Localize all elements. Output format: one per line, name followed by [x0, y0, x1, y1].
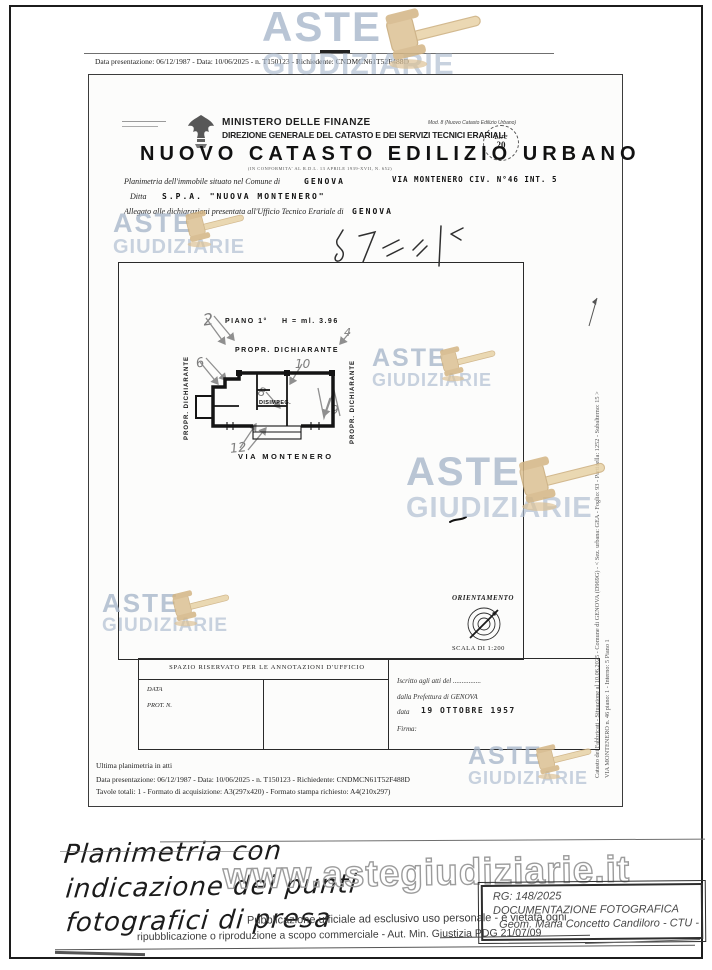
gavel-icon: [506, 456, 616, 512]
watermark-aste-1: ASTE GIUDIZIARIE: [262, 6, 455, 80]
form-line1-value: GENOVA: [304, 177, 345, 186]
compass-icon: [462, 602, 506, 646]
sheet-footer-line1: Data presentazione: 06/12/1987 - Data: 1…: [96, 775, 410, 784]
room-label: DISIMPEG.: [259, 400, 291, 406]
photo-doc-box: RG: 148/2025 DOCUMENTAZIONE FOTOGRAFICA …: [481, 883, 703, 941]
registry-line-1: Iscritto agli atti del ................: [397, 677, 481, 685]
watermark-aste-4: ASTE GIUDIZIARIE: [406, 452, 593, 523]
gavel-icon: [372, 8, 492, 70]
form-line2-value: S.P.A. "NUOVA MONTENERO": [162, 192, 326, 201]
gavel-icon: [528, 744, 598, 780]
gavel-icon: [177, 210, 251, 248]
form-line2-label: Ditta: [130, 192, 146, 201]
office-stamp: [122, 118, 172, 132]
annotations-data-label: DATA: [147, 686, 163, 693]
watermark-aste-5: ASTE GIUDIZIARIE: [102, 590, 228, 635]
sheet-subtitle: (IN CONFORMITA' AL R.D.L. 13 APRILE 1939…: [180, 166, 460, 171]
watermark-aste-2: ASTE GIUDIZIARIE: [113, 210, 245, 257]
sheet-title: NUOVO CATASTO EDILIZIO URBANO: [140, 143, 500, 166]
scale-label: SCALA DI 1:200: [452, 645, 505, 652]
form-line1-label: Planimetria dell'immobile situato nel Co…: [124, 177, 280, 186]
form-line1-right: VIA MONTENERO CIV. N°46 INT. 5: [392, 175, 557, 184]
address-reference-vertical: VIA MONTENERO n. 46 piano: 1 - Interno: …: [604, 639, 611, 778]
watermark-aste-3: ASTE GIUDIZIARIE: [372, 346, 492, 389]
direzione-line: DIREZIONE GENERALE DEL CATASTO E DEI SER…: [222, 130, 506, 140]
gavel-icon: [432, 346, 502, 382]
box-ctu: Geom. Maria Concetto Candiloro - CTU -: [499, 916, 701, 932]
owner-label-left: PROPR. DICHIARANTE: [184, 356, 190, 440]
floor-plan: DISIMPEG.: [183, 366, 355, 462]
orientation-title: ORIENTAMENTO: [452, 594, 514, 602]
handwritten-scribble: [325, 222, 475, 270]
owner-label-right: PROPR. DICHIARANTE: [350, 360, 356, 444]
street-label: VIA MONTENERO: [238, 452, 334, 461]
form-line3-value: GENOVA: [352, 207, 393, 216]
cadastral-reference-vertical: Catasto dei Fabbricati - Situazione al 1…: [594, 391, 601, 778]
annotations-title: SPAZIO RISERVATO PER LE ANNOTAZIONI D'UF…: [151, 664, 383, 671]
registry-date-value: 19 OTTOBRE 1957: [421, 706, 516, 715]
annotations-divider-1: [263, 679, 264, 749]
watermark-aste-6: ASTE GIUDIZIARIE: [468, 744, 588, 787]
ministry-name: MINISTERO DELLE FINANZE: [222, 117, 371, 128]
scan-line-b: [60, 851, 260, 852]
annotations-prot-label: PROT. N.: [147, 702, 172, 709]
side-arrow: [586, 294, 600, 328]
registry-line-2: dalla Prefettura di GENOVA: [397, 693, 478, 701]
gavel-icon: [164, 590, 236, 627]
registry-sign-label: Firma:: [397, 725, 417, 733]
annotations-box: SPAZIO RISERVATO PER LE ANNOTAZIONI D'UF…: [138, 658, 600, 750]
registry-date-label: data: [397, 708, 409, 716]
sheet-footer-line0: Ultima planimetria in atti: [96, 761, 172, 770]
sheet-footer-line2: Tavole totali: 1 - Formato di acquisizio…: [96, 787, 390, 796]
annotations-divider-2: [388, 659, 389, 749]
